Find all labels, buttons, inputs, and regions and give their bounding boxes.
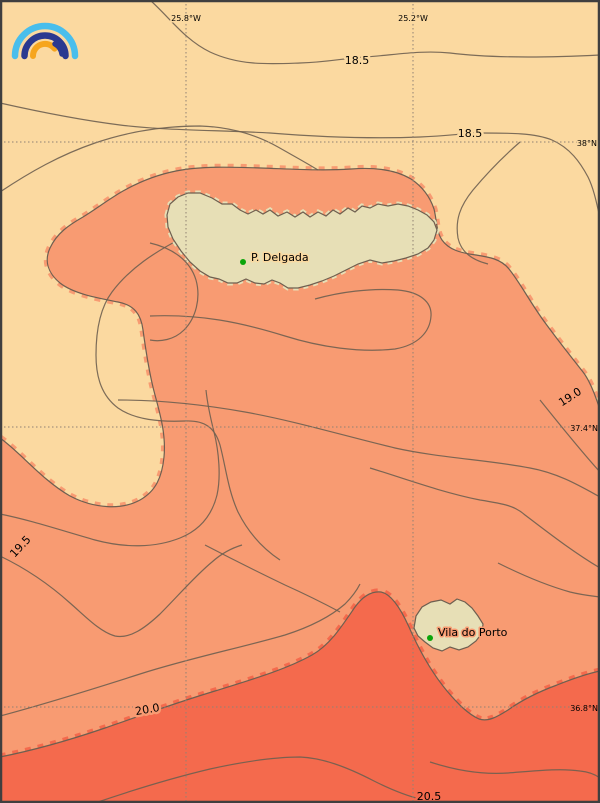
city-label-p-delgada: P. Delgada (251, 251, 309, 264)
lon-label-25-8w: 25.8°W (171, 14, 201, 23)
sst-map: 18.5 18.5 19.0 19.5 20.0 20.5 25.8°W 25.… (0, 0, 600, 803)
city-marker-p-delgada (240, 259, 246, 265)
lon-label-25-2w: 25.2°W (398, 14, 428, 23)
contour-label-18-5-a: 18.5 (345, 54, 370, 67)
lat-label-37-4n: 37.4°N (570, 424, 598, 433)
city-marker-vila-do-porto (427, 635, 433, 641)
contour-label-18-5-b: 18.5 (458, 127, 483, 140)
map-canvas: 18.5 18.5 19.0 19.5 20.0 20.5 25.8°W 25.… (0, 0, 600, 803)
city-label-vila-do-porto: Vila do Porto (438, 626, 508, 639)
lat-label-36-8n: 36.8°N (570, 704, 598, 713)
lat-label-38n: 38°N (577, 139, 597, 148)
